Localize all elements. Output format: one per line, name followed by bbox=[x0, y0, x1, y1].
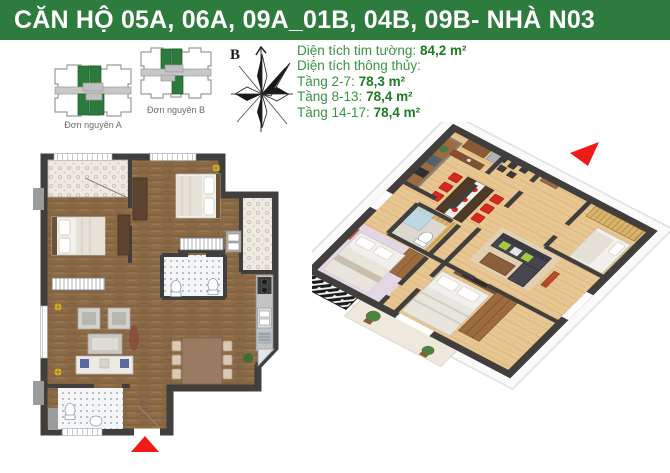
bathroom-right-2d bbox=[241, 198, 272, 272]
bed-1 bbox=[52, 217, 105, 255]
bed-2 bbox=[176, 174, 220, 218]
gross-area-line: Diện tích tim tường: 84,2 m² bbox=[297, 43, 466, 58]
area-info: Diện tích tim tường: 84,2 m² Diện tích t… bbox=[297, 43, 466, 120]
site-location-diagram: Đơn nguyên A Đơn nguyên B bbox=[45, 45, 257, 140]
gross-area-label: Diện tích tim tường: bbox=[297, 43, 416, 58]
building-b-label: Đơn nguyên B bbox=[147, 105, 205, 115]
entrance-arrow-marker-3d bbox=[570, 142, 599, 166]
floor-plan-3d bbox=[312, 122, 670, 472]
floor-plan-2d bbox=[30, 138, 315, 468]
entrance-arrow-marker-2d bbox=[131, 436, 159, 452]
net-area-line: Diện tích thông thủy: bbox=[297, 58, 466, 73]
compass-north-label: B bbox=[230, 47, 240, 63]
net-area-label: Diện tích thông thủy: bbox=[297, 58, 421, 73]
page-title: CĂN HỘ 05A, 06A, 09A_01B, 04B, 09B- NHÀ … bbox=[0, 6, 595, 35]
building-b-outline bbox=[141, 48, 211, 98]
wardrobe-hatched bbox=[52, 278, 105, 290]
balcony-2d bbox=[48, 160, 128, 197]
building-a-label: Đơn nguyên A bbox=[64, 120, 121, 130]
building-a-outline bbox=[55, 65, 131, 116]
gross-area-value: 84,2 m² bbox=[420, 43, 467, 58]
floorplan-page: CĂN HỘ 05A, 06A, 09A_01B, 04B, 09B- NHÀ … bbox=[0, 0, 670, 473]
wardrobe-hatched bbox=[180, 238, 223, 250]
wardrobe bbox=[118, 215, 130, 255]
dining-set-2d bbox=[172, 338, 232, 384]
wardrobe bbox=[133, 178, 147, 220]
floor-area-line: Tầng 2-7: 78,3 m² bbox=[297, 74, 466, 89]
floor-area-line: Tầng 14-17: 78,4 m² bbox=[297, 105, 466, 120]
compass-rose-icon: B bbox=[227, 42, 299, 137]
header-bar: CĂN HỘ 05A, 06A, 09A_01B, 04B, 09B- NHÀ … bbox=[0, 0, 670, 40]
floor-area-line: Tầng 8-13: 78,4 m² bbox=[297, 89, 466, 104]
